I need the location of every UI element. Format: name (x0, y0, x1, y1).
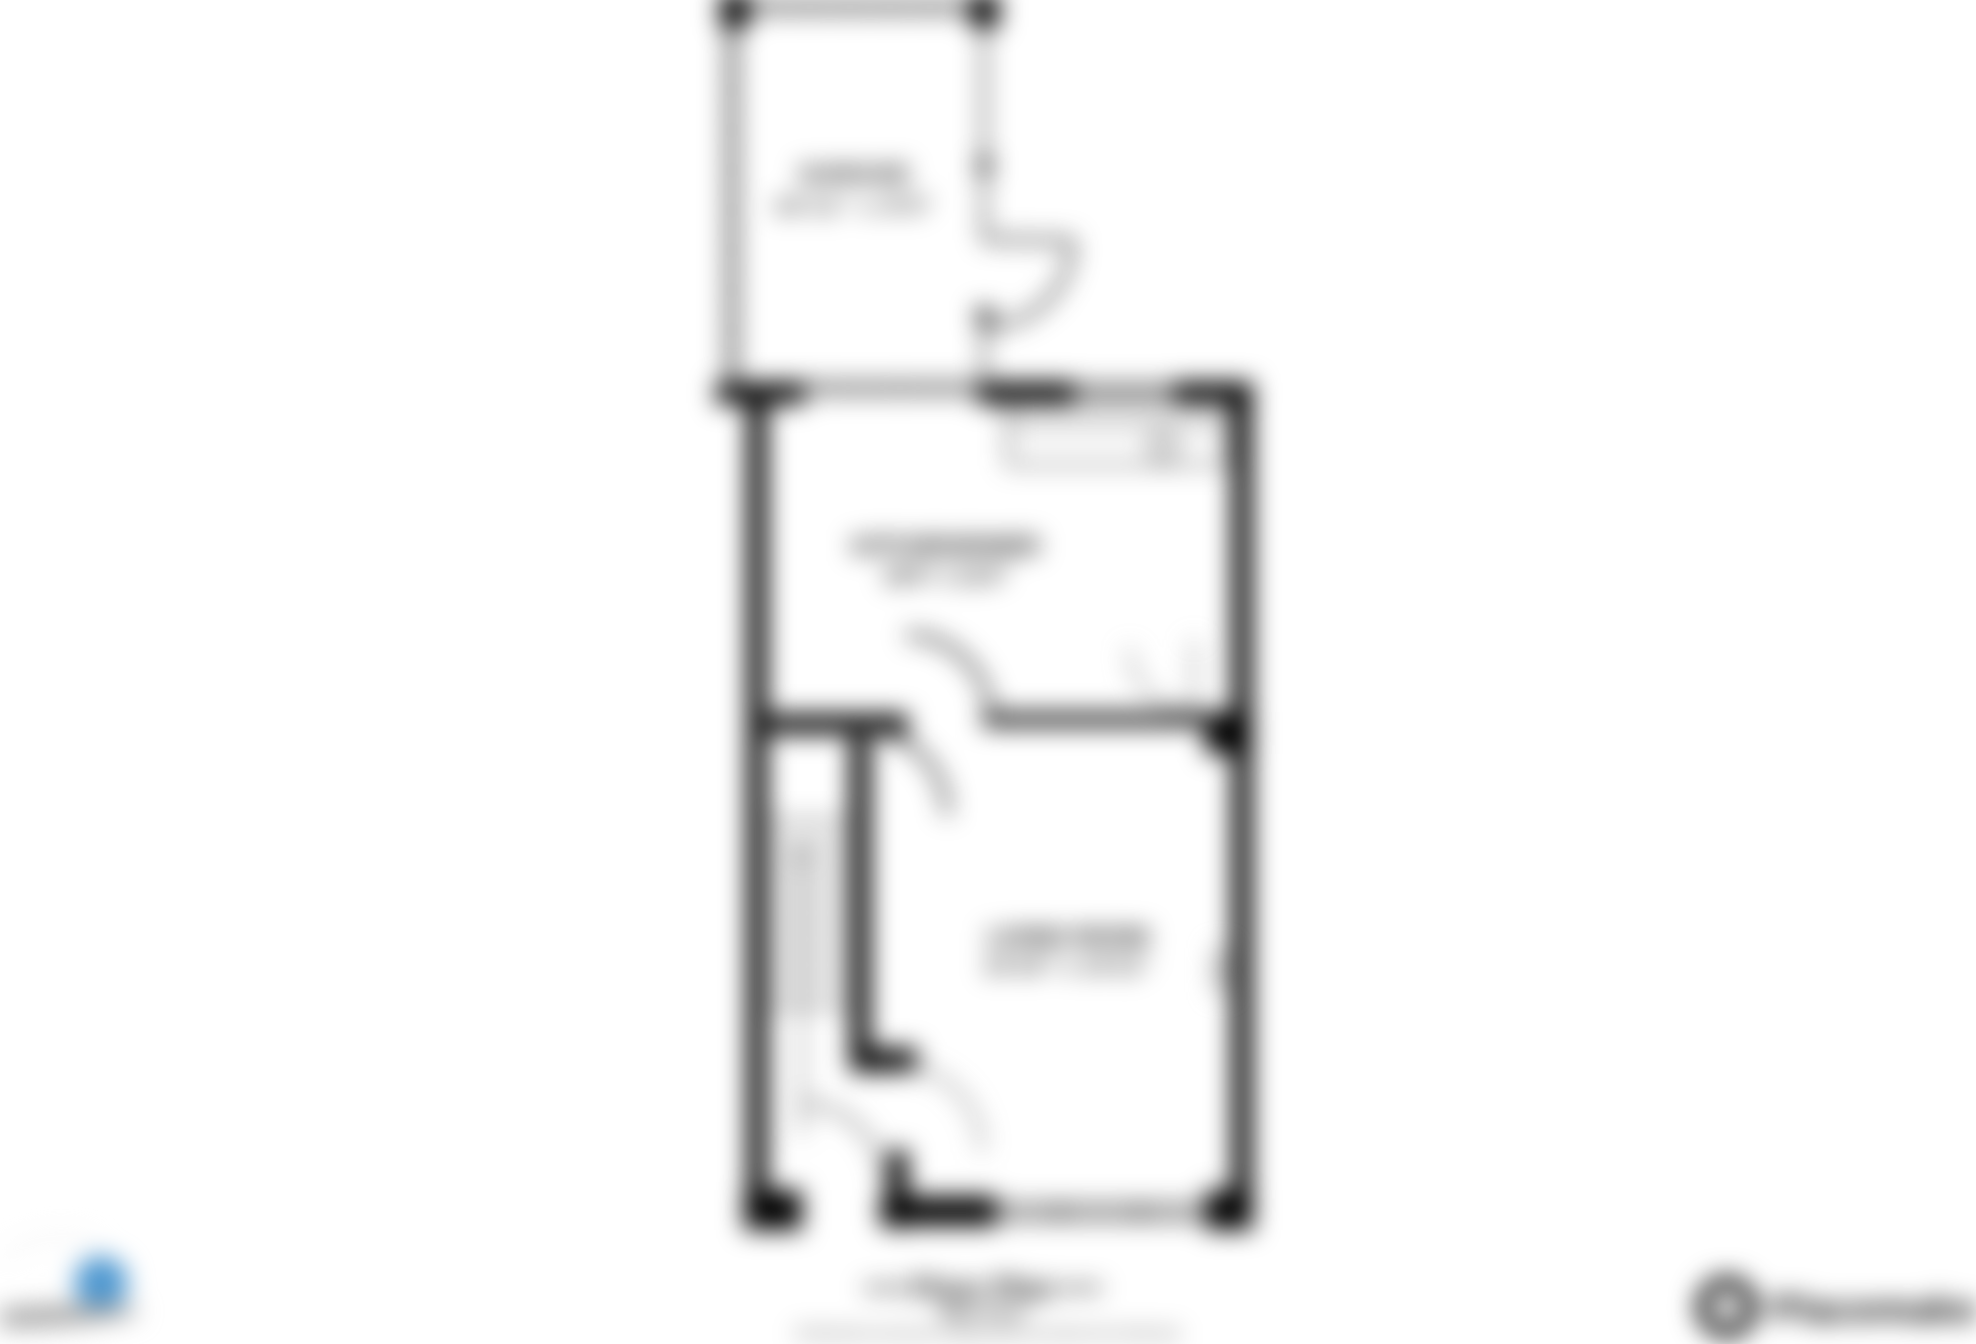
svg-text:Main Floor: Main Floor (940, 1303, 1026, 1322)
svg-text:16'5" x 11'0": 16'5" x 11'0" (884, 565, 1009, 588)
svg-text:Placemaker: Placemaker (1772, 1289, 1976, 1331)
svg-text:Floor Plan: Floor Plan (912, 1273, 1054, 1305)
svg-text:KITCHEN/DINER: KITCHEN/DINER (852, 533, 1040, 560)
svg-text:16'11" x 8'5": 16'11" x 8'5" (774, 195, 935, 218)
svg-text:All dimensions and areas are a: All dimensions and areas are approximate… (795, 1326, 1181, 1340)
svg-text:GARAGE: GARAGE (799, 161, 910, 188)
svg-text:14'10" x 13'11": 14'10" x 13'11" (984, 955, 1152, 978)
svg-text:LIVING ROOM: LIVING ROOM (987, 924, 1148, 951)
